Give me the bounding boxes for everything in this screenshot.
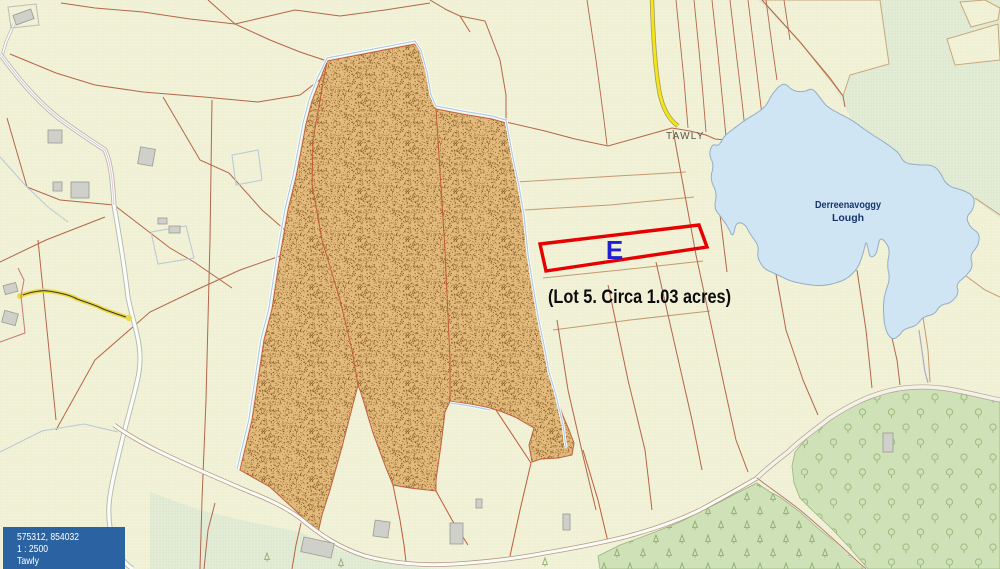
svg-text:(Lot 5. Circa 1.03 acres): (Lot 5. Circa 1.03 acres)	[548, 287, 731, 308]
svg-text:Derreenavoggy: Derreenavoggy	[815, 199, 881, 211]
svg-text:TAWLY: TAWLY	[666, 131, 705, 142]
svg-text:E: E	[606, 235, 623, 265]
svg-text:Tawly: Tawly	[17, 556, 39, 567]
svg-text:575312, 854032: 575312, 854032	[17, 532, 79, 543]
svg-text:Lough: Lough	[832, 212, 864, 224]
svg-text:1 : 2500: 1 : 2500	[17, 544, 48, 555]
